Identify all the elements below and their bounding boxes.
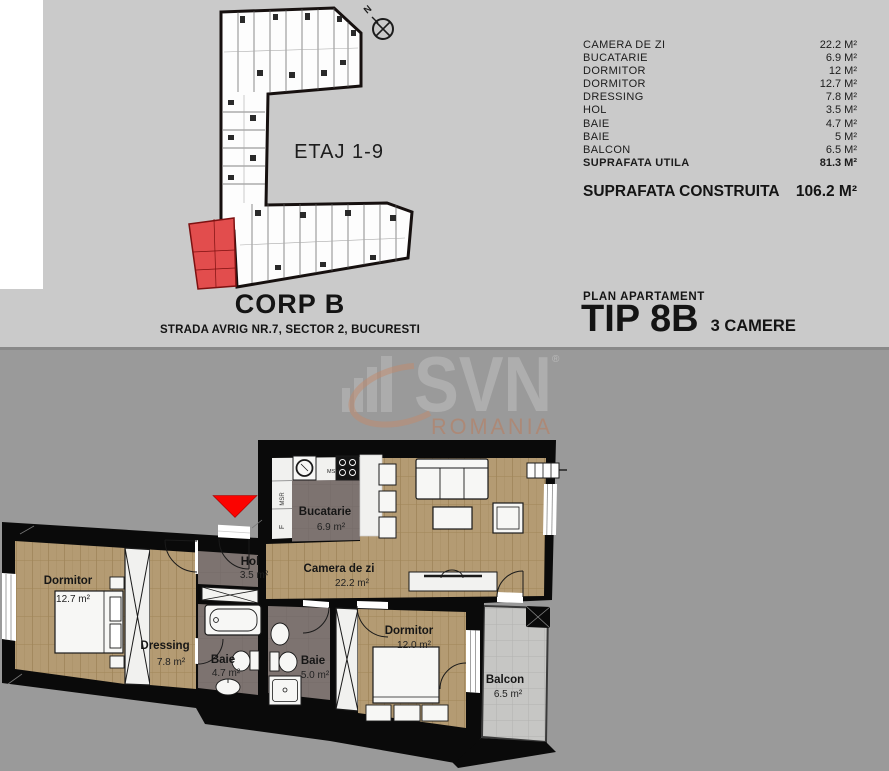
left-margin-strip (0, 0, 43, 289)
room-label: Dormitor (385, 625, 434, 637)
armchair (493, 503, 523, 533)
fridge-label: F (279, 525, 286, 529)
wardrobe (125, 548, 150, 685)
sofa (416, 459, 488, 499)
compass-north-label: N (362, 3, 374, 16)
svg-text:5.0 m²: 5.0 m² (301, 670, 330, 681)
entrance-arrow-icon (213, 496, 257, 518)
bathtub (205, 605, 261, 635)
table-row: DORMITOR12 M² (583, 65, 857, 78)
svg-text:12.7 m²: 12.7 m² (56, 594, 91, 605)
sink (271, 623, 289, 645)
room-label: Camera de zi (304, 563, 375, 575)
svg-text:12.0 m²: 12.0 m² (397, 640, 432, 651)
window (2, 573, 16, 641)
building-title: CORP B (150, 291, 430, 318)
msv-label: MSV (327, 469, 339, 475)
room-label: Bucatarie (299, 506, 351, 518)
svg-text:4.7 m²: 4.7 m² (212, 668, 241, 679)
built-area-value: 106.2 M² (796, 183, 857, 201)
stove (336, 456, 359, 480)
north-compass-icon: N (362, 3, 393, 39)
table-row: HOL3.5 M² (583, 104, 857, 117)
toilet (270, 652, 297, 672)
coffee-table (433, 507, 472, 529)
registered-mark-icon: ® (552, 354, 560, 365)
building-id-block: CORP B STRADA AVRIG NR.7, SECTOR 2, BUCU… (150, 291, 430, 336)
table-row: BUCATARIE6.9 M² (583, 52, 857, 65)
table-row: BAIE5 M² (583, 131, 857, 144)
apartment-floorplan: SVN ® ROMANIA (0, 350, 889, 771)
room-label: Hol (241, 556, 260, 568)
watermark-region: ROMANIA (431, 414, 553, 439)
apartment-type-label: TIP 8B (581, 300, 699, 338)
table-row: CAMERA DE ZI22.2 M² (583, 39, 857, 52)
bar-stools (379, 464, 396, 538)
svg-text:3.5 m²: 3.5 m² (240, 570, 269, 581)
svg-text:7.8 m²: 7.8 m² (157, 657, 186, 668)
hall-closet (202, 587, 258, 603)
highlighted-unit (189, 218, 236, 289)
table-row: BALCON6.5 M² (583, 144, 857, 157)
table-row: BAIE4.7 M² (583, 118, 857, 131)
apartment-type-block: TIP 8B 3 CAMERE (581, 300, 796, 338)
entrance-door-gap (218, 525, 250, 539)
room-label: Baie (301, 655, 325, 667)
shower (269, 676, 301, 705)
room-dressing-floor (150, 550, 196, 690)
window (543, 484, 557, 535)
built-area-label: SUPRAFATA CONSTRUITA (583, 183, 780, 201)
room-label: Baie (211, 654, 235, 666)
room-label: Dormitor (44, 575, 93, 587)
room-area-table: CAMERA DE ZI22.2 M² BUCATARIE6.9 M² DORM… (583, 39, 857, 170)
building-address: STRADA AVRIG NR.7, SECTOR 2, BUCURESTI (150, 324, 430, 336)
table-row: DORMITOR12.7 M² (583, 78, 857, 91)
tv-stand (409, 570, 497, 591)
sink (216, 679, 240, 695)
table-row-total: SUPRAFATA UTILA81.3 M² (583, 157, 857, 170)
kitchen-side-cabinets: MSR F (272, 481, 292, 540)
bed (366, 647, 448, 721)
washing-machine (293, 456, 316, 480)
wardrobe (336, 608, 358, 711)
brochure-page: N ETAJ 1-9 CORP B STRADA AVRIG NR.7, SEC… (0, 0, 889, 771)
table-row: DRESSING7.8 M² (583, 91, 857, 104)
svn-watermark: SVN ® ROMANIA (342, 350, 560, 439)
svg-text:6.9 m²: 6.9 m² (317, 522, 346, 533)
msr-label: MSR (280, 492, 286, 506)
svg-text:22.2 m²: 22.2 m² (335, 578, 370, 589)
built-area-row: SUPRAFATA CONSTRUITA 106.2 M² (583, 183, 857, 201)
room-label: Dressing (140, 640, 189, 652)
floor-range-label: ETAJ 1-9 (289, 141, 389, 164)
room-label: Balcon (486, 674, 524, 686)
rooms-count-label: 3 CAMERE (711, 317, 796, 336)
radiator (527, 463, 567, 478)
svg-text:6.5 m²: 6.5 m² (494, 689, 523, 700)
